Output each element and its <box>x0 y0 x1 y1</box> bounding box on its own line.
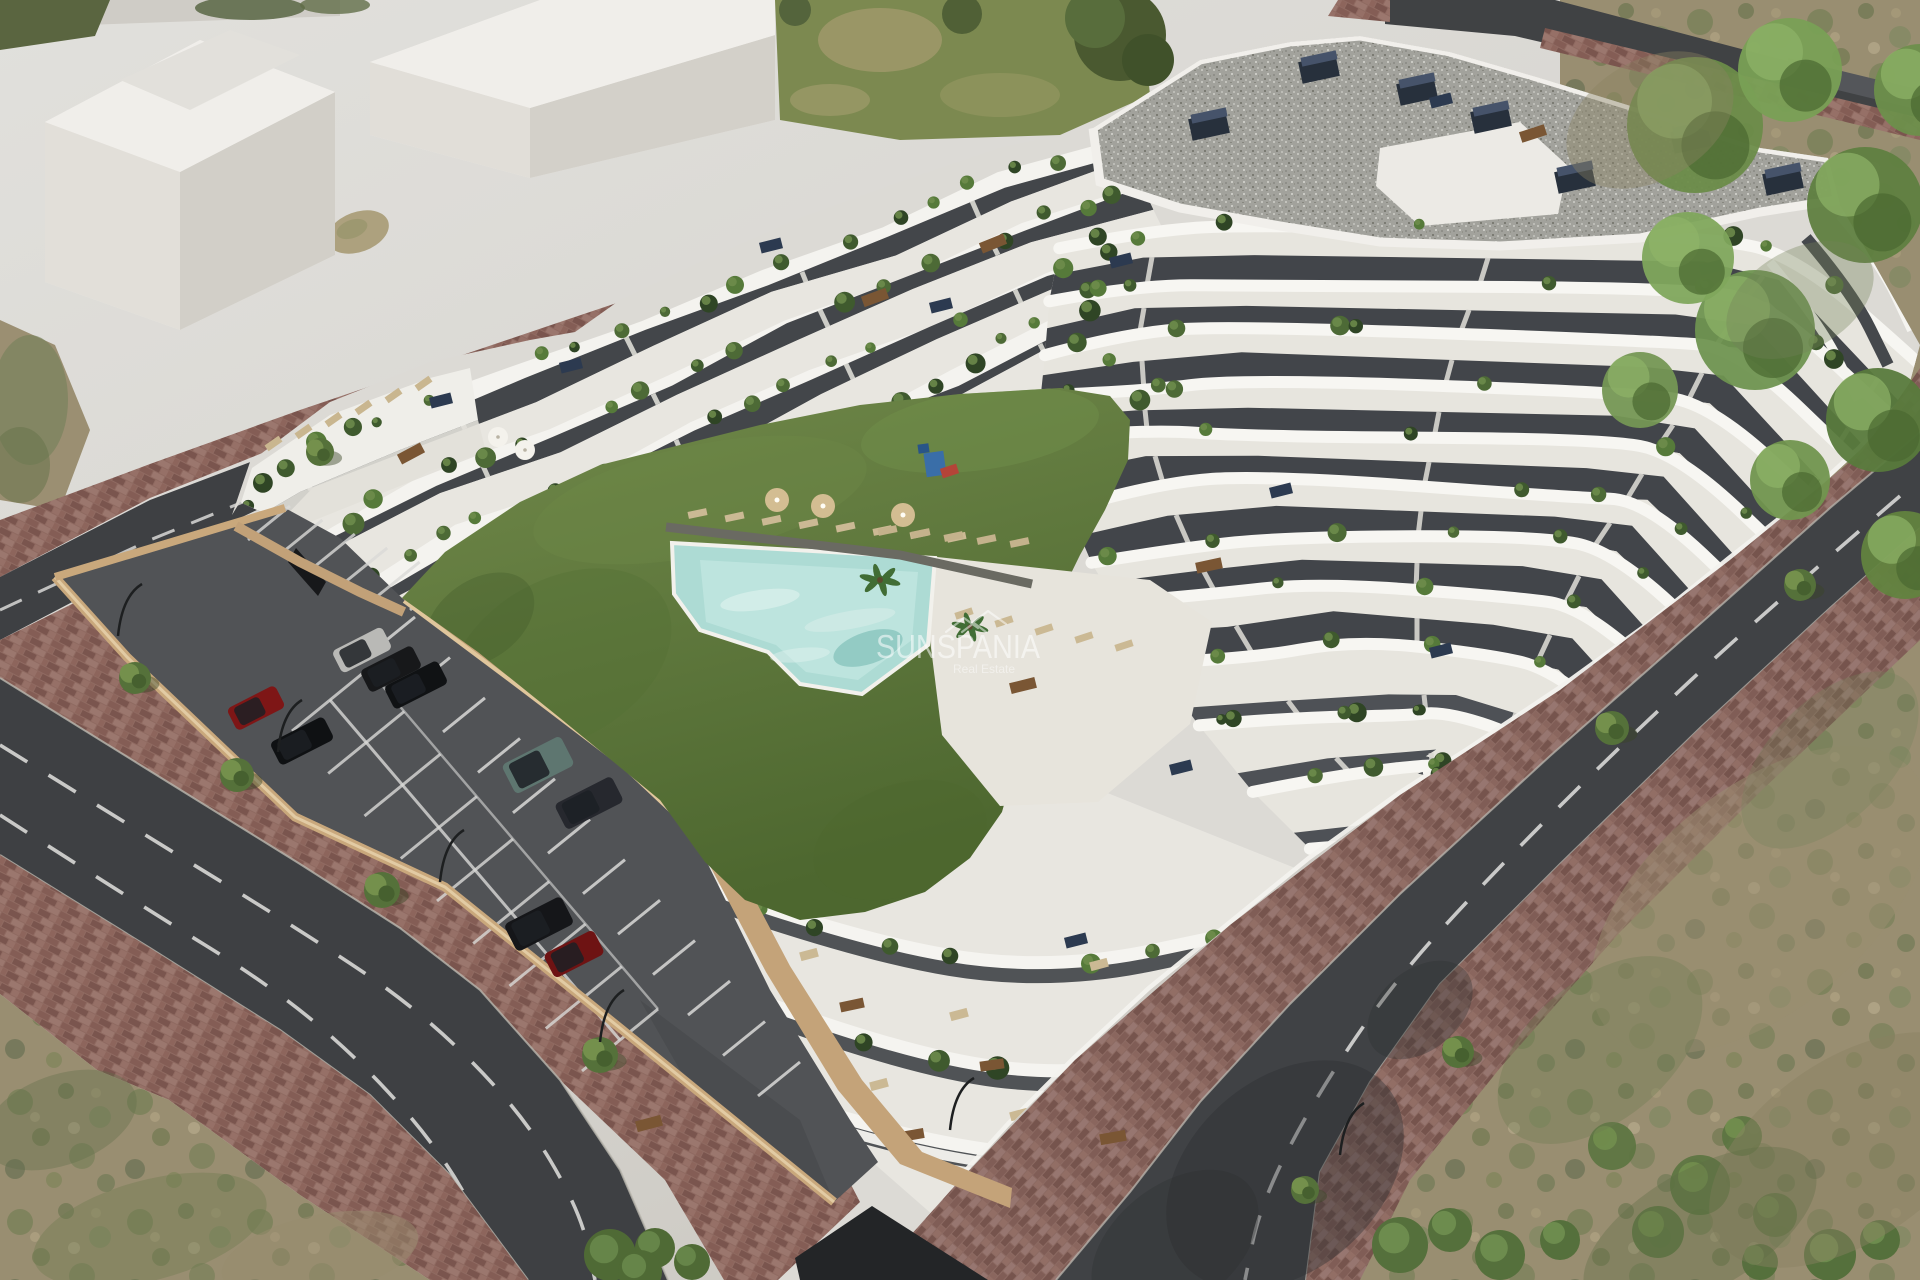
svg-text:Real Estate: Real Estate <box>953 662 1015 676</box>
svg-text:SUNSPANIA: SUNSPANIA <box>876 628 1040 665</box>
